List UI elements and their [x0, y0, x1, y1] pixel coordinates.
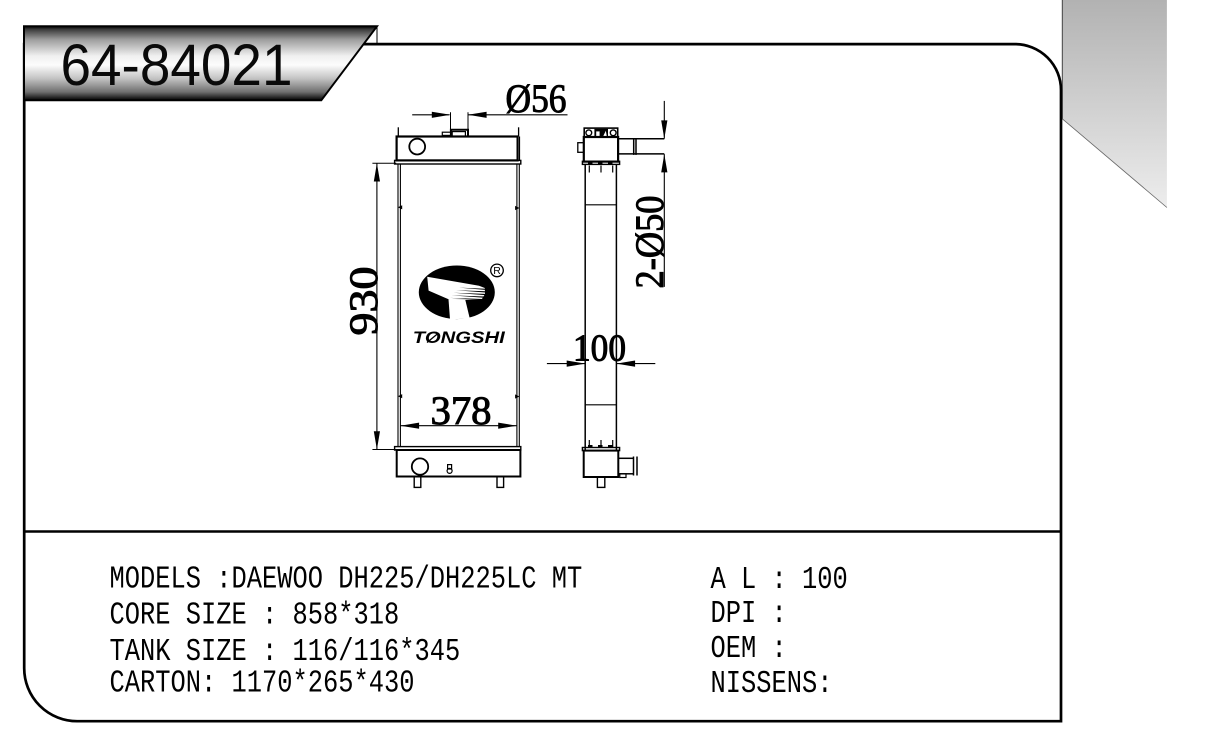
- svg-text:100: 100: [573, 328, 626, 370]
- svg-text:64-84021: 64-84021: [61, 33, 293, 98]
- svg-text:R: R: [493, 265, 501, 277]
- svg-text:CARTON: 1170*265*430: CARTON: 1170*265*430: [110, 665, 415, 701]
- svg-text:A L : 100: A L : 100: [711, 562, 848, 598]
- svg-text:DPI :: DPI :: [711, 596, 787, 632]
- svg-text:2-Ø50: 2-Ø50: [627, 196, 672, 289]
- svg-text:378: 378: [431, 388, 492, 433]
- svg-text:TONGSHI: TONGSHI: [413, 329, 506, 347]
- svg-text:CORE SIZE : 858*318: CORE SIZE : 858*318: [110, 597, 400, 633]
- svg-text:930: 930: [341, 267, 386, 336]
- svg-text:NISSENS:: NISSENS:: [711, 666, 833, 702]
- svg-text:Ø56: Ø56: [506, 76, 567, 121]
- svg-text:MODELS :DAEWOO DH225/DH225LC M: MODELS :DAEWOO DH225/DH225LC MT: [110, 561, 583, 597]
- svg-text:OEM :: OEM :: [711, 631, 787, 667]
